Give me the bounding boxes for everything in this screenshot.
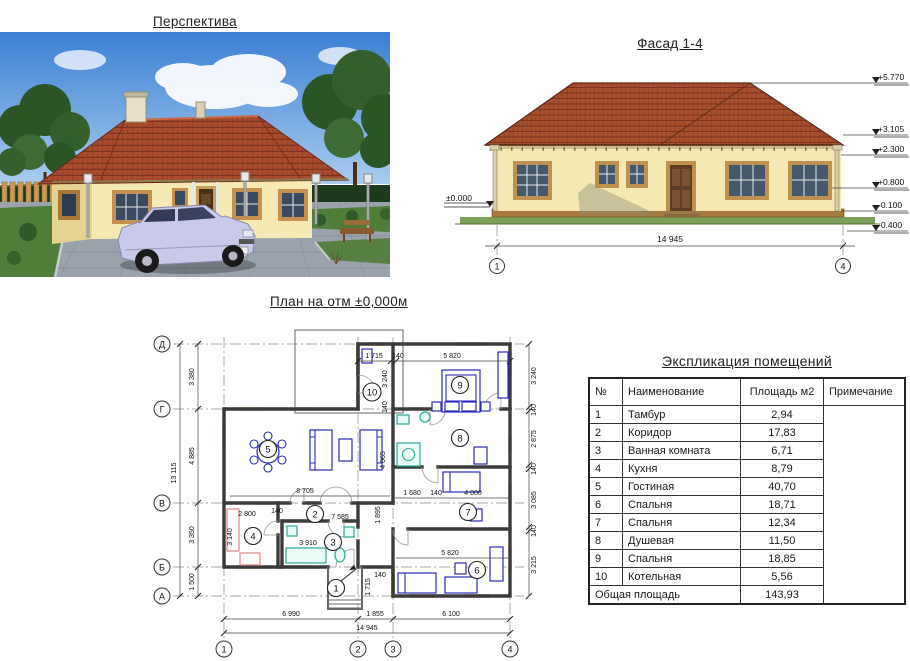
name-cell: Кухня xyxy=(623,460,741,478)
elevation-mark: +5.770 xyxy=(750,72,909,85)
chimney xyxy=(126,96,146,122)
num-cell: 7 xyxy=(589,514,623,532)
shower-tray xyxy=(397,443,420,466)
svg-text:3 140: 3 140 xyxy=(227,528,234,546)
elevation-mark: -0.100 xyxy=(841,200,909,213)
svg-text:2 800: 2 800 xyxy=(238,511,256,518)
window-front-3 xyxy=(278,189,308,221)
left-dim-chain: 13 115 3 380 4 885 3 350 1 500 xyxy=(171,341,201,599)
right-dim-chain: 3 240 140 2 875 140 3 085 140 3 215 xyxy=(526,341,538,599)
total-area: 143,93 xyxy=(741,586,824,605)
plan-section: План на отм ±0,000м xyxy=(140,293,582,661)
facade-window-small-1 xyxy=(595,161,619,188)
wardrobe xyxy=(490,547,503,581)
svg-text:140: 140 xyxy=(531,525,538,537)
nightstand xyxy=(481,402,490,411)
note-cell xyxy=(824,586,906,605)
name-cell: Котельная xyxy=(623,568,741,586)
svg-text:10: 10 xyxy=(367,388,378,399)
svg-text:2: 2 xyxy=(312,510,317,521)
facade-overall-dim: 14 945 xyxy=(657,234,683,244)
svg-text:+0.800: +0.800 xyxy=(878,177,905,187)
table-row: 6Спальня18,71 xyxy=(589,496,905,514)
svg-text:6: 6 xyxy=(474,566,479,577)
svg-text:1: 1 xyxy=(333,584,338,595)
svg-text:7 585: 7 585 xyxy=(331,514,349,521)
grid-label: В xyxy=(154,495,170,511)
header-num: № xyxy=(589,378,623,406)
header-note: Примечание xyxy=(824,378,906,406)
svg-text:4 065: 4 065 xyxy=(380,451,387,469)
svg-text:-0.400: -0.400 xyxy=(878,220,902,230)
svg-text:2: 2 xyxy=(355,645,360,655)
shower-room-furniture xyxy=(397,412,487,466)
coffee-table xyxy=(339,439,352,461)
grid-label: 2 xyxy=(350,641,366,657)
desk xyxy=(445,577,477,593)
window-front-small xyxy=(172,188,188,208)
note-cell xyxy=(824,442,906,460)
svg-text:3 240: 3 240 xyxy=(531,367,538,385)
note-cell xyxy=(824,532,906,550)
table-row: 4Кухня8,79 xyxy=(589,460,905,478)
note-cell xyxy=(824,424,906,442)
svg-text:140: 140 xyxy=(374,572,386,579)
svg-text:+3.105: +3.105 xyxy=(878,124,905,134)
plan-bottom-total: 14 945 xyxy=(356,625,378,632)
svg-text:1 500: 1 500 xyxy=(189,573,196,591)
svg-text:Б: Б xyxy=(159,563,165,573)
svg-text:6 100: 6 100 xyxy=(442,611,460,618)
name-cell: Гостиная xyxy=(623,478,741,496)
svg-text:5 820: 5 820 xyxy=(441,550,459,557)
room-number: 6 xyxy=(469,562,486,579)
table-row: 7Спальня12,34 xyxy=(589,514,905,532)
room-number: 1 xyxy=(328,580,345,597)
facade-section: Фасад 1-4 xyxy=(430,36,910,293)
num-cell: 8 xyxy=(589,532,623,550)
schedule-body: 1Тамбур2,942Коридор17,833Ванная комната6… xyxy=(589,406,905,605)
svg-text:4 000: 4 000 xyxy=(464,490,482,497)
svg-text:-0.100: -0.100 xyxy=(878,200,902,210)
grid-label: 4 xyxy=(502,641,518,657)
plan-drawing: 1 2 3 4 5 6 7 8 9 10 Д Г В Б А 1 2 3 4 xyxy=(140,297,582,659)
bathtub xyxy=(286,548,326,563)
elevation-mark: +3.105 xyxy=(843,124,909,137)
total-label: Общая площадь xyxy=(589,586,741,605)
num-cell: 9 xyxy=(589,550,623,568)
note-cell xyxy=(824,514,906,532)
table-row: 2Коридор17,83 xyxy=(589,424,905,442)
num-cell: 4 xyxy=(589,460,623,478)
top-dim-chain: 1 715 140 5 820 xyxy=(355,353,513,364)
svg-text:1 680: 1 680 xyxy=(403,490,421,497)
num-cell: 1 xyxy=(589,406,623,424)
wardrobe xyxy=(498,352,508,398)
zero-mark-label: ±0.000 xyxy=(446,193,472,203)
area-cell: 11,50 xyxy=(741,532,824,550)
door-step-2 xyxy=(664,214,700,217)
table-row: 8Душевая11,50 xyxy=(589,532,905,550)
grid-label: А xyxy=(154,588,170,604)
facade-title: Фасад 1-4 xyxy=(430,36,910,51)
table-row: 3Ванная комната6,71 xyxy=(589,442,905,460)
svg-text:140: 140 xyxy=(531,404,538,416)
facade-window-2 xyxy=(725,161,769,200)
table-row: 9Спальня18,85 xyxy=(589,550,905,568)
num-cell: 5 xyxy=(589,478,623,496)
vent xyxy=(196,102,205,118)
nightstand xyxy=(432,402,441,411)
svg-text:6 990: 6 990 xyxy=(282,611,300,618)
area-cell: 2,94 xyxy=(741,406,824,424)
svg-text:8: 8 xyxy=(457,434,462,445)
sink xyxy=(420,412,430,422)
svg-text:3 240: 3 240 xyxy=(382,370,389,388)
note-cell xyxy=(824,460,906,478)
room-number: 8 xyxy=(452,430,469,447)
facade-dimension: 14 945 1 4 xyxy=(485,225,855,274)
svg-text:1 715: 1 715 xyxy=(365,578,372,596)
note-cell xyxy=(824,568,906,586)
svg-text:140: 140 xyxy=(271,508,283,515)
svg-text:3: 3 xyxy=(330,538,335,549)
svg-text:140: 140 xyxy=(430,490,442,497)
svg-text:8 705: 8 705 xyxy=(296,488,314,495)
facade-drawing: ±0.000 +5.770 +3.105 +2.300 +0.800 xyxy=(430,51,910,293)
room-number: 7 xyxy=(460,504,477,521)
area-cell: 18,85 xyxy=(741,550,824,568)
svg-text:А: А xyxy=(159,592,165,602)
washing-machine xyxy=(474,447,487,464)
note-cell xyxy=(824,406,906,424)
perspective-title: Перспектива xyxy=(0,14,390,29)
schedule-header-row: № Наименование Площадь м2 Примечание xyxy=(589,378,905,406)
kitchen-table xyxy=(240,553,260,565)
washing-machine xyxy=(344,527,354,537)
bathroom-furniture xyxy=(286,526,354,563)
grid-col-labels: 1 2 3 4 xyxy=(216,641,518,657)
bed xyxy=(443,472,480,492)
grid-label: 3 xyxy=(385,641,401,657)
svg-text:3 380: 3 380 xyxy=(189,368,196,386)
facade-window-1 xyxy=(513,161,552,200)
facade-window-small-2 xyxy=(626,161,648,188)
grid-label: Б xyxy=(154,559,170,575)
num-cell: 10 xyxy=(589,568,623,586)
chair xyxy=(455,563,466,574)
table-row: 5Гостиная40,70 xyxy=(589,478,905,496)
ground-strip xyxy=(460,217,875,224)
washbasin xyxy=(287,526,297,536)
area-cell: 17,83 xyxy=(741,424,824,442)
svg-text:4: 4 xyxy=(250,532,255,543)
svg-text:1 895: 1 895 xyxy=(375,506,382,524)
name-cell: Коридор xyxy=(623,424,741,442)
area-cell: 40,70 xyxy=(741,478,824,496)
svg-text:3: 3 xyxy=(390,645,395,655)
svg-text:1: 1 xyxy=(221,645,226,655)
table-row: 10Котельная5,56 xyxy=(589,568,905,586)
elevation-mark: +2.300 xyxy=(841,144,909,157)
name-cell: Тамбур xyxy=(623,406,741,424)
grid-label: Г xyxy=(154,401,170,417)
header-name: Наименование xyxy=(623,378,741,406)
zero-elevation-mark: ±0.000 xyxy=(444,193,494,207)
name-cell: Спальня xyxy=(623,550,741,568)
area-cell: 5,56 xyxy=(741,568,824,586)
perspective-section: Перспектива xyxy=(0,14,390,277)
sofa xyxy=(360,430,382,470)
schedule-total-row: Общая площадь 143,93 xyxy=(589,586,905,605)
svg-text:1 715: 1 715 xyxy=(365,353,383,360)
svg-text:9: 9 xyxy=(457,381,462,392)
room-number: 5 xyxy=(260,441,277,458)
svg-text:3 085: 3 085 xyxy=(531,491,538,509)
grid-label: Д xyxy=(154,336,170,352)
room-schedule-table: № Наименование Площадь м2 Примечание 1Та… xyxy=(588,377,906,605)
door-step-1 xyxy=(660,211,704,214)
plan-title: План на отм ±0,000м xyxy=(270,294,408,309)
facade-axis-4: 4 xyxy=(840,262,845,272)
window-front-2 xyxy=(232,188,262,220)
note-cell xyxy=(824,496,906,514)
room-number: 3 xyxy=(325,534,342,551)
note-cell xyxy=(824,478,906,496)
svg-text:3 910: 3 910 xyxy=(299,540,317,547)
bottom-dim-chain: 6 990 1 855 6 100 14 945 xyxy=(221,611,513,636)
svg-text:4 885: 4 885 xyxy=(189,447,196,465)
name-cell: Ванная комната xyxy=(623,442,741,460)
svg-text:5 820: 5 820 xyxy=(443,353,461,360)
perspective-image xyxy=(0,32,390,277)
area-cell: 6,71 xyxy=(741,442,824,460)
window-left-face xyxy=(58,190,80,220)
num-cell: 3 xyxy=(589,442,623,460)
header-area: Площадь м2 xyxy=(741,378,824,406)
room-number: 4 xyxy=(245,528,262,545)
table-row: 1Тамбур2,94 xyxy=(589,406,905,424)
svg-text:5: 5 xyxy=(265,445,270,456)
room-number: 9 xyxy=(452,377,469,394)
svg-text:Д: Д xyxy=(159,340,165,350)
sofa xyxy=(310,430,332,470)
area-cell: 12,34 xyxy=(741,514,824,532)
svg-text:140: 140 xyxy=(531,463,538,475)
num-cell: 2 xyxy=(589,424,623,442)
svg-text:Г: Г xyxy=(160,405,165,415)
room-number: 2 xyxy=(307,506,324,523)
schedule-section: Экспликация помещений № Наименование Пло… xyxy=(588,353,906,605)
svg-text:3 350: 3 350 xyxy=(189,526,196,544)
facade-roof xyxy=(485,83,843,145)
area-cell: 18,71 xyxy=(741,496,824,514)
svg-text:4: 4 xyxy=(507,645,512,655)
svg-text:+5.770: +5.770 xyxy=(878,72,905,82)
facade-axis-1: 1 xyxy=(494,262,499,272)
svg-text:1 855: 1 855 xyxy=(366,611,384,618)
svg-text:2 875: 2 875 xyxy=(531,430,538,448)
note-cell xyxy=(824,550,906,568)
facade-window-3 xyxy=(788,161,832,200)
name-cell: Спальня xyxy=(623,496,741,514)
elevation-mark: +0.800 xyxy=(832,177,909,190)
svg-text:140: 140 xyxy=(392,353,404,360)
room-number: 10 xyxy=(363,383,381,401)
svg-text:140: 140 xyxy=(382,401,389,413)
washbasin xyxy=(397,415,409,424)
grid-row-labels: Д Г В Б А xyxy=(154,336,170,604)
svg-text:3 215: 3 215 xyxy=(531,556,538,574)
num-cell: 6 xyxy=(589,496,623,514)
schedule-title: Экспликация помещений xyxy=(588,353,906,369)
area-cell: 8,79 xyxy=(741,460,824,478)
svg-text:+2.300: +2.300 xyxy=(878,144,905,154)
name-cell: Спальня xyxy=(623,514,741,532)
plan-left-total: 13 115 xyxy=(171,462,178,483)
grid-label: 1 xyxy=(216,641,232,657)
svg-text:7: 7 xyxy=(465,508,470,519)
svg-text:В: В xyxy=(159,499,165,509)
entry-steps xyxy=(328,600,362,608)
name-cell: Душевая xyxy=(623,532,741,550)
bed xyxy=(398,573,436,593)
